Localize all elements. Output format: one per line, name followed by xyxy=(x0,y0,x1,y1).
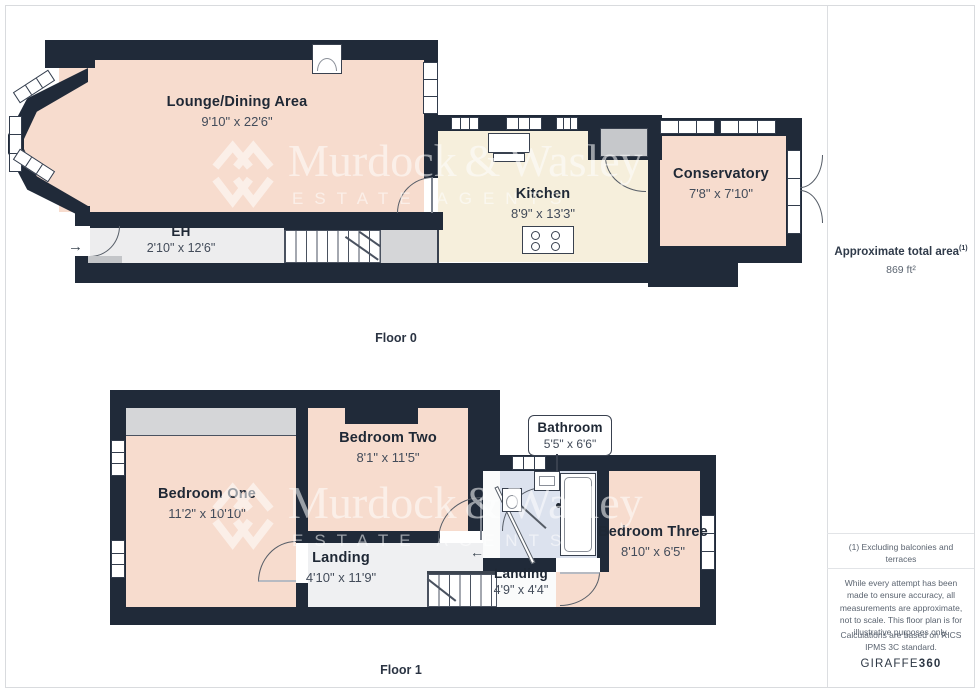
room-label-kitchen: Kitchen 8'9" x 13'3" xyxy=(511,186,575,221)
room-label-bedroom-two: Bedroom Two 8'1" x 11'5" xyxy=(339,430,437,465)
room-label-conservatory: Conservatory 7'8" x 7'10" xyxy=(673,166,769,201)
stairs-arrow-icon: ← xyxy=(470,545,484,559)
room-label-eh: EH 2'10" x 12'6" xyxy=(147,224,216,255)
room-label-bedroom-one: Bedroom One 11'2" x 10'10" xyxy=(158,486,256,521)
room-label-landing: Landing 4'10" x 11'9" xyxy=(306,550,376,585)
callout-pointer xyxy=(556,454,558,471)
page-border xyxy=(5,5,975,688)
floor0-label: Floor 0 xyxy=(375,331,417,345)
room-label-landing-small: Landing 4'9" x 4'4" xyxy=(494,566,549,597)
room-label-bathroom: Bathroom 5'5" x 6'6" xyxy=(528,415,612,456)
entrance-arrow-icon: → xyxy=(68,239,83,254)
floor1-label: Floor 1 xyxy=(380,663,422,677)
room-label-bedroom-three: Bedroom Three 8'10" x 6'5" xyxy=(598,524,708,559)
room-label-lounge: Lounge/Dining Area 9'10" x 22'6" xyxy=(167,94,308,129)
floorplan-page: → Lounge/Dining Area 9'10" x 22'6" EH 2'… xyxy=(0,0,980,693)
